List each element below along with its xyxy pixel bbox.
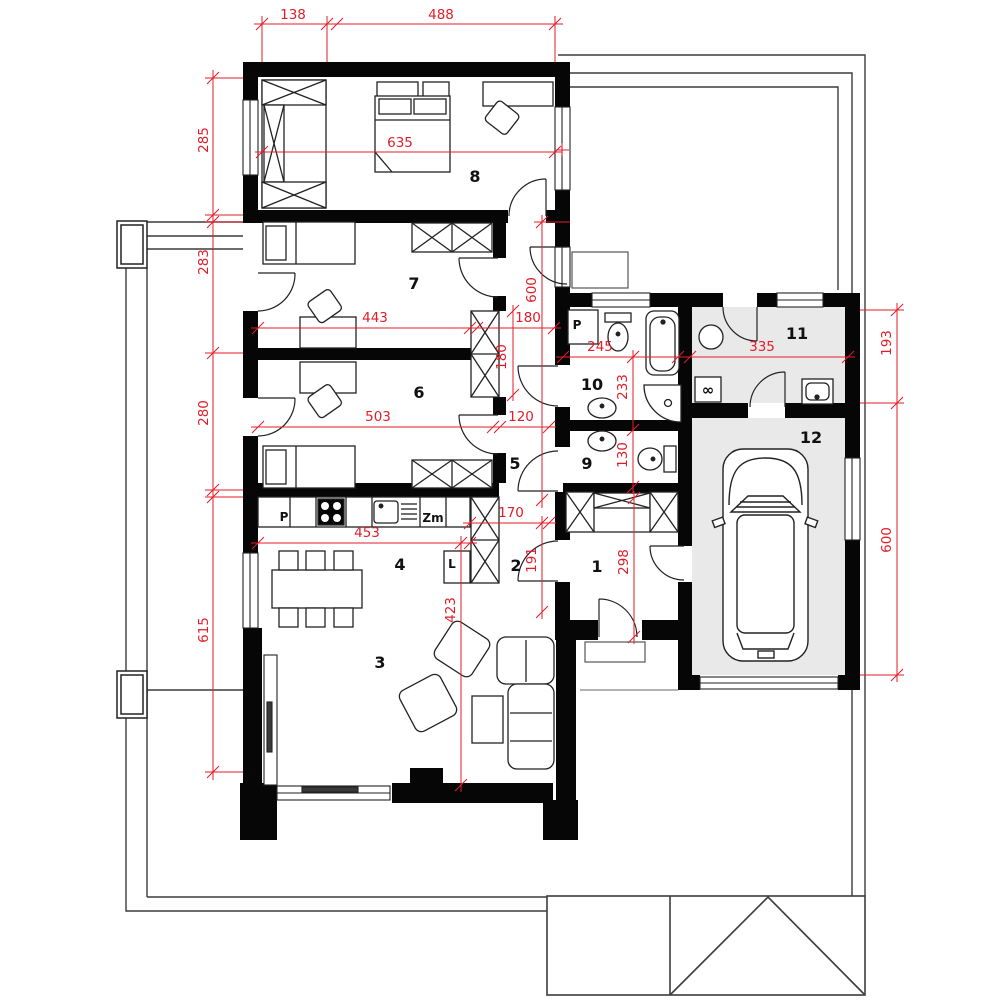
- washbasin-bath10: [588, 398, 616, 418]
- window-room8-left: [243, 100, 258, 175]
- dim-600b: 600: [879, 527, 895, 553]
- car: [712, 449, 817, 661]
- washbasin-wc9: [588, 431, 616, 451]
- door-main-entrance: [599, 599, 637, 637]
- room-3-label: 3: [374, 653, 385, 672]
- dim-180a: 180: [515, 310, 541, 326]
- door-room7: [459, 258, 498, 297]
- coffee-table: [472, 696, 503, 743]
- dim-423: 423: [443, 597, 459, 623]
- dim-120: 120: [508, 409, 534, 425]
- room-5-label: 5: [509, 454, 520, 473]
- window-kitchen-left: [243, 553, 258, 628]
- room-9-label: 9: [581, 454, 592, 473]
- window-utility-top: [777, 293, 823, 307]
- sofa: [497, 637, 554, 769]
- dim-285: 285: [196, 127, 212, 153]
- door-wc9: [518, 451, 558, 491]
- dim-138: 138: [280, 7, 306, 23]
- dim-283: 283: [196, 249, 212, 275]
- single-bed-room7: [263, 222, 355, 264]
- single-bed-room6: [263, 446, 355, 488]
- door-bathroom10: [518, 366, 558, 406]
- dim-335: 335: [749, 339, 775, 355]
- boiler-icon: [699, 325, 723, 349]
- room-4-label: 4: [394, 555, 405, 574]
- dim-193: 193: [879, 330, 895, 356]
- armchair-1: [432, 619, 493, 680]
- kitchen-p-label: P: [280, 510, 289, 524]
- closet-kitchen: [471, 497, 499, 583]
- wardrobe-room6: [412, 460, 492, 488]
- armchair-2: [397, 672, 459, 734]
- floor-plan-page: 138 488 285 283 280 615 635 443 180 180 …: [0, 0, 1000, 1000]
- dim-191: 191: [524, 547, 540, 573]
- desk-room7: [300, 317, 356, 348]
- shower: [644, 385, 681, 422]
- side-door-glazing: [555, 247, 570, 287]
- dim-280: 280: [196, 400, 212, 426]
- dim-180b: 180: [494, 344, 510, 370]
- room-6-label: 6: [413, 383, 424, 402]
- room-8-label: 8: [469, 167, 480, 186]
- dim-170: 170: [498, 505, 524, 521]
- dining-table: [272, 570, 362, 608]
- floor-plan-drawing: 138 488 285 283 280 615 635 443 180 180 …: [0, 0, 1000, 1000]
- sliding-door-living-bottom: [277, 786, 390, 800]
- door-terrace-room7: [258, 273, 295, 311]
- adjacent-roof-outline: [547, 896, 865, 995]
- door-room8: [509, 179, 546, 216]
- dim-488: 488: [428, 7, 454, 23]
- utility-sink-icon: [802, 379, 833, 404]
- dim-130: 130: [615, 442, 631, 468]
- dim-600a: 600: [524, 277, 540, 303]
- bath-washer-label: P: [573, 318, 582, 332]
- dim-298: 298: [616, 549, 632, 575]
- garage-door: [700, 677, 838, 689]
- wardrobe-hall: [566, 492, 678, 532]
- terrace-columns: [117, 221, 147, 718]
- room-12-label: 12: [800, 428, 822, 447]
- wardrobe-room8: [262, 80, 326, 208]
- dim-245: 245: [587, 339, 613, 355]
- room-1-label: 1: [591, 557, 602, 576]
- door-terrace-room6: [258, 398, 295, 436]
- wardrobe-room7: [412, 223, 492, 252]
- room-7-label: 7: [408, 274, 419, 293]
- dim-503: 503: [365, 409, 391, 425]
- bathtub: [646, 311, 679, 375]
- laundry-symbol: ∞: [702, 381, 715, 399]
- dim-615: 615: [196, 617, 212, 643]
- dim-453: 453: [354, 525, 380, 541]
- toilet-wc9: [638, 446, 676, 472]
- window-bathroom-top: [592, 293, 650, 307]
- double-bed-room8: [375, 82, 450, 172]
- stove-icon: [318, 499, 344, 525]
- dim-635: 635: [387, 135, 413, 151]
- dim-443: 443: [362, 310, 388, 326]
- room-11-label: 11: [786, 324, 808, 343]
- window-garage-right: [845, 458, 860, 540]
- room-2-label: 2: [510, 556, 521, 575]
- door-hall-garage: [650, 546, 684, 580]
- dishwasher-label: Zm: [422, 511, 443, 525]
- glazing-living-left: [264, 655, 277, 785]
- room-10-label: 10: [581, 375, 603, 394]
- dim-233: 233: [615, 374, 631, 400]
- door-room6: [459, 415, 498, 454]
- fridge-label: L: [448, 557, 456, 571]
- desk-room8: [483, 82, 553, 106]
